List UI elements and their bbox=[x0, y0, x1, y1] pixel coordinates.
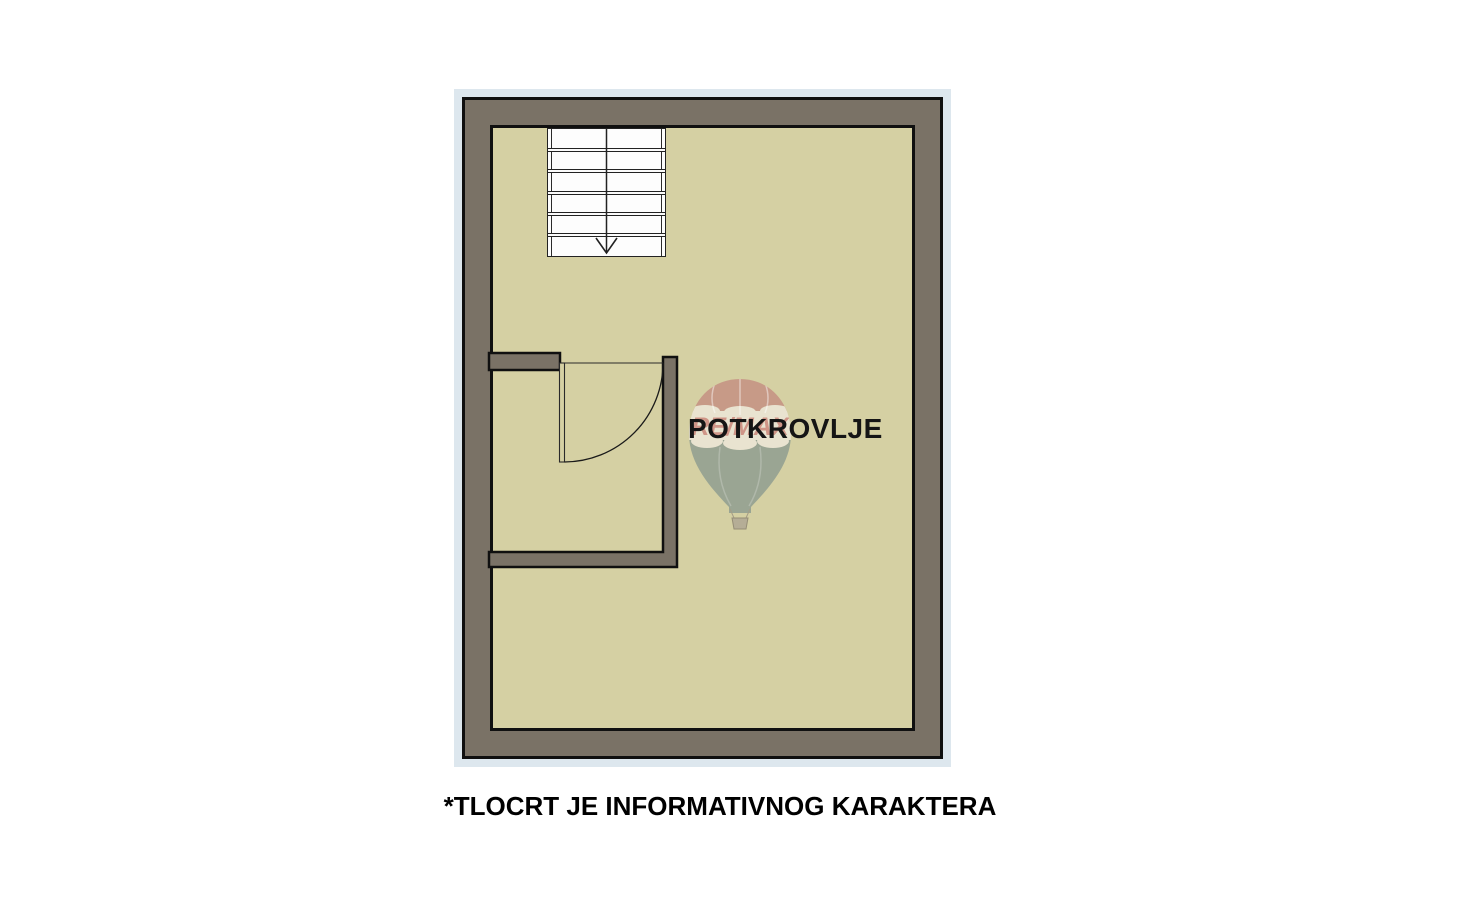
stair-tread-line bbox=[548, 233, 665, 237]
closet-wall bbox=[489, 357, 677, 567]
floor-plan: RE/MAX POTKROVLJE bbox=[462, 97, 943, 759]
door-swing-arc bbox=[565, 363, 664, 462]
page: RE/MAX POTKROVLJE bbox=[0, 0, 1478, 903]
stair-tread-line bbox=[548, 212, 665, 216]
interior-floor: RE/MAX POTKROVLJE bbox=[490, 125, 915, 731]
balloon-envelope: RE/MAX bbox=[685, 377, 795, 513]
stair-tread-line bbox=[548, 169, 665, 173]
caption-text: *TLOCRT JE INFORMATIVNOG KARAKTERA bbox=[440, 791, 1000, 822]
balloon-basket bbox=[732, 518, 748, 529]
staircase bbox=[547, 128, 666, 257]
interior-wall-stub bbox=[489, 353, 560, 370]
stair-tread-line bbox=[548, 191, 665, 195]
room-label: POTKROVLJE bbox=[688, 413, 883, 445]
stair-tread-line bbox=[548, 148, 665, 152]
door-leaf bbox=[560, 363, 565, 462]
remax-balloon-watermark: RE/MAX bbox=[685, 377, 795, 532]
balloon-icon: RE/MAX bbox=[685, 377, 795, 532]
